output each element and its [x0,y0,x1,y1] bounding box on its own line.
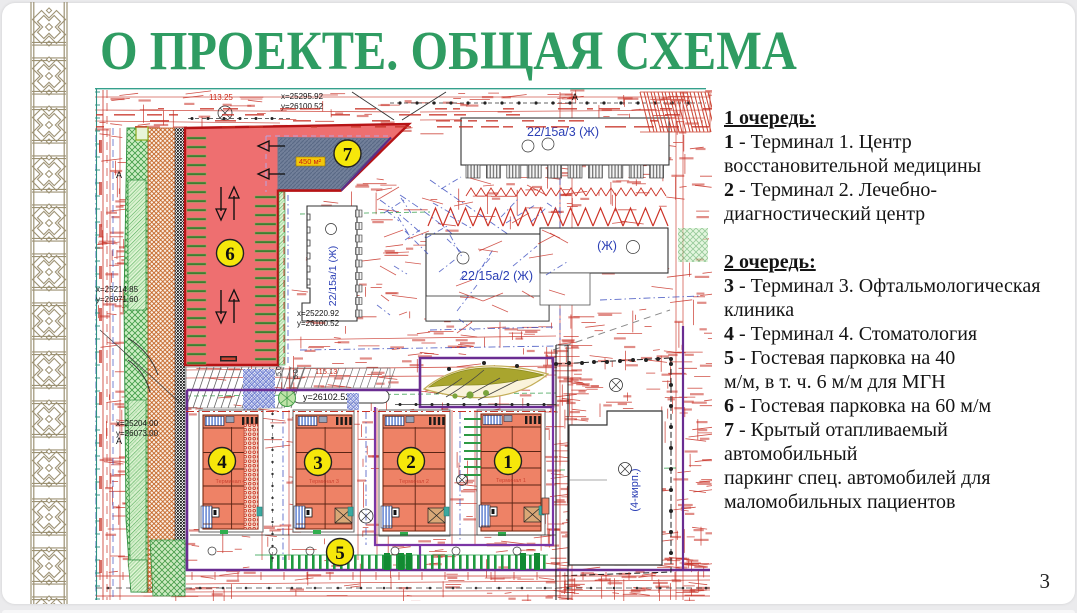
svg-text:113.25: 113.25 [209,93,233,102]
svg-text:y=26100.52: y=26100.52 [297,319,340,328]
svg-text:(Ж): (Ж) [597,239,617,253]
svg-text:5.0: 5.0 [276,366,283,376]
svg-text:2: 2 [406,452,416,473]
svg-text:А: А [572,92,578,102]
svg-text:x=25220.92: x=25220.92 [297,309,340,318]
svg-text:22/15а/1 (Ж): 22/15а/1 (Ж) [327,246,339,306]
svg-text:y=26102.52: y=26102.52 [303,392,350,402]
svg-text:1: 1 [503,452,513,473]
svg-text:115.13: 115.13 [315,367,337,376]
svg-text:450 м²: 450 м² [299,157,322,166]
svg-text:А: А [116,170,122,180]
svg-text:x=25204.00: x=25204.00 [116,419,159,428]
svg-text:22/15а/2 (Ж): 22/15а/2 (Ж) [461,269,533,283]
svg-text:Терминал 2: Терминал 2 [399,479,429,485]
svg-text:А: А [116,436,122,446]
svg-text:x=25214.85: x=25214.85 [96,285,139,294]
svg-text:y=26073.00: y=26073.00 [116,429,159,438]
svg-text:y=26100.52: y=26100.52 [281,102,324,111]
svg-text:5: 5 [335,543,345,564]
svg-text:3: 3 [313,453,323,474]
svg-text:7: 7 [343,144,353,165]
svg-text:y=26071.60: y=26071.60 [96,295,139,304]
svg-text:Терминал 4: Терминал 4 [216,479,246,485]
svg-text:4: 4 [217,452,227,473]
svg-text:(4-кирп.): (4-кирп.) [629,468,641,511]
svg-text:Терминал 3: Терминал 3 [309,479,339,485]
svg-text:Терминал 1: Терминал 1 [496,478,526,484]
svg-text:x=25295.92: x=25295.92 [281,92,324,101]
svg-text:5.0: 5.0 [293,369,300,379]
svg-text:6: 6 [225,244,235,265]
